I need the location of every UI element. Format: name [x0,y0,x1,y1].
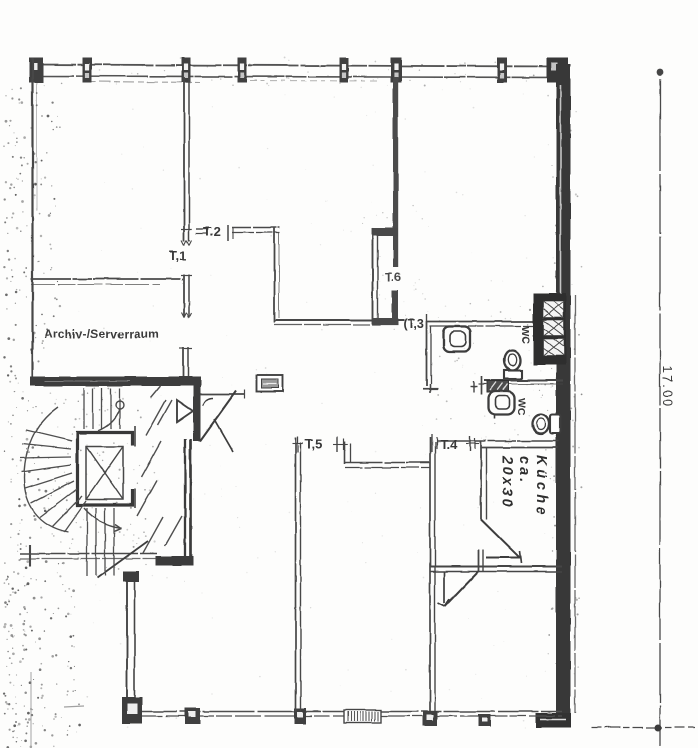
svg-text:20x30: 20x30 [499,455,515,509]
svg-text:T.6: T.6 [385,270,401,284]
svg-text:ca.: ca. [516,456,532,485]
svg-text:Archiv-/Serverraum: Archiv-/Serverraum [44,327,159,341]
svg-text:Küche: Küche [533,455,549,518]
svg-text:T.2: T.2 [203,224,220,239]
svg-text:WC: WC [519,326,531,344]
svg-text:T,1: T,1 [169,248,186,263]
svg-text:17.00: 17.00 [660,366,674,408]
svg-text:T,5: T,5 [305,436,322,451]
svg-text:T.4: T.4 [440,437,458,452]
svg-text:WC: WC [515,398,527,416]
svg-text:(T,3: (T,3 [403,317,424,331]
